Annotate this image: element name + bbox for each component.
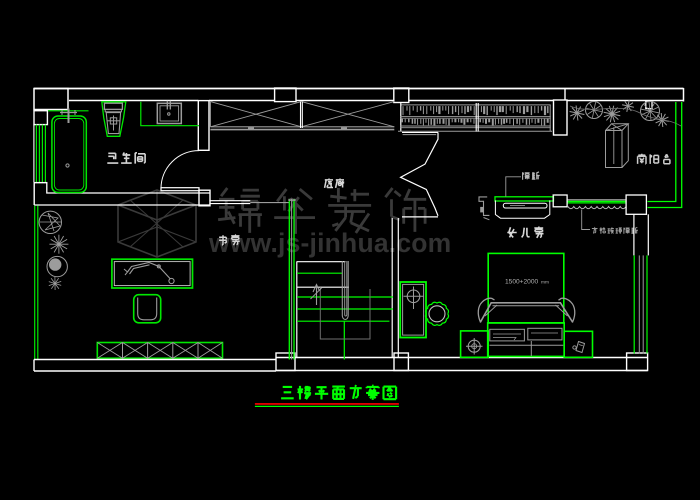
svg-text:1500+2000: 1500+2000	[505, 279, 539, 286]
svg-text:mm: mm	[541, 281, 549, 286]
svg-text:www.js-jinhua.com: www.js-jinhua.com	[208, 228, 451, 258]
